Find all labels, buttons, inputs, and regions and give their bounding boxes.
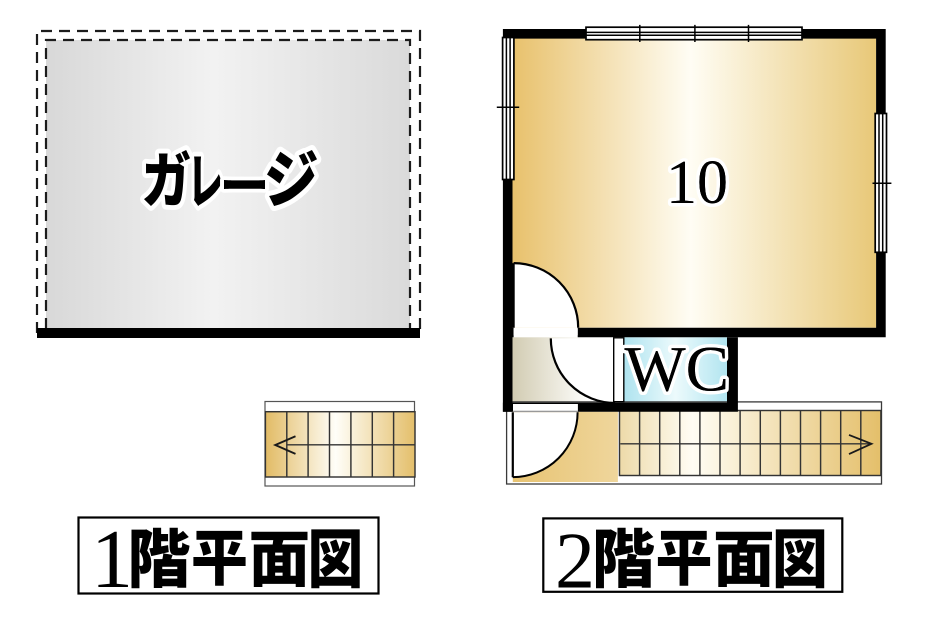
svg-text:WC: WC [624, 334, 729, 406]
svg-text:2: 2 [555, 518, 595, 606]
svg-text:1: 1 [91, 513, 133, 606]
svg-text:10: 10 [666, 149, 728, 217]
